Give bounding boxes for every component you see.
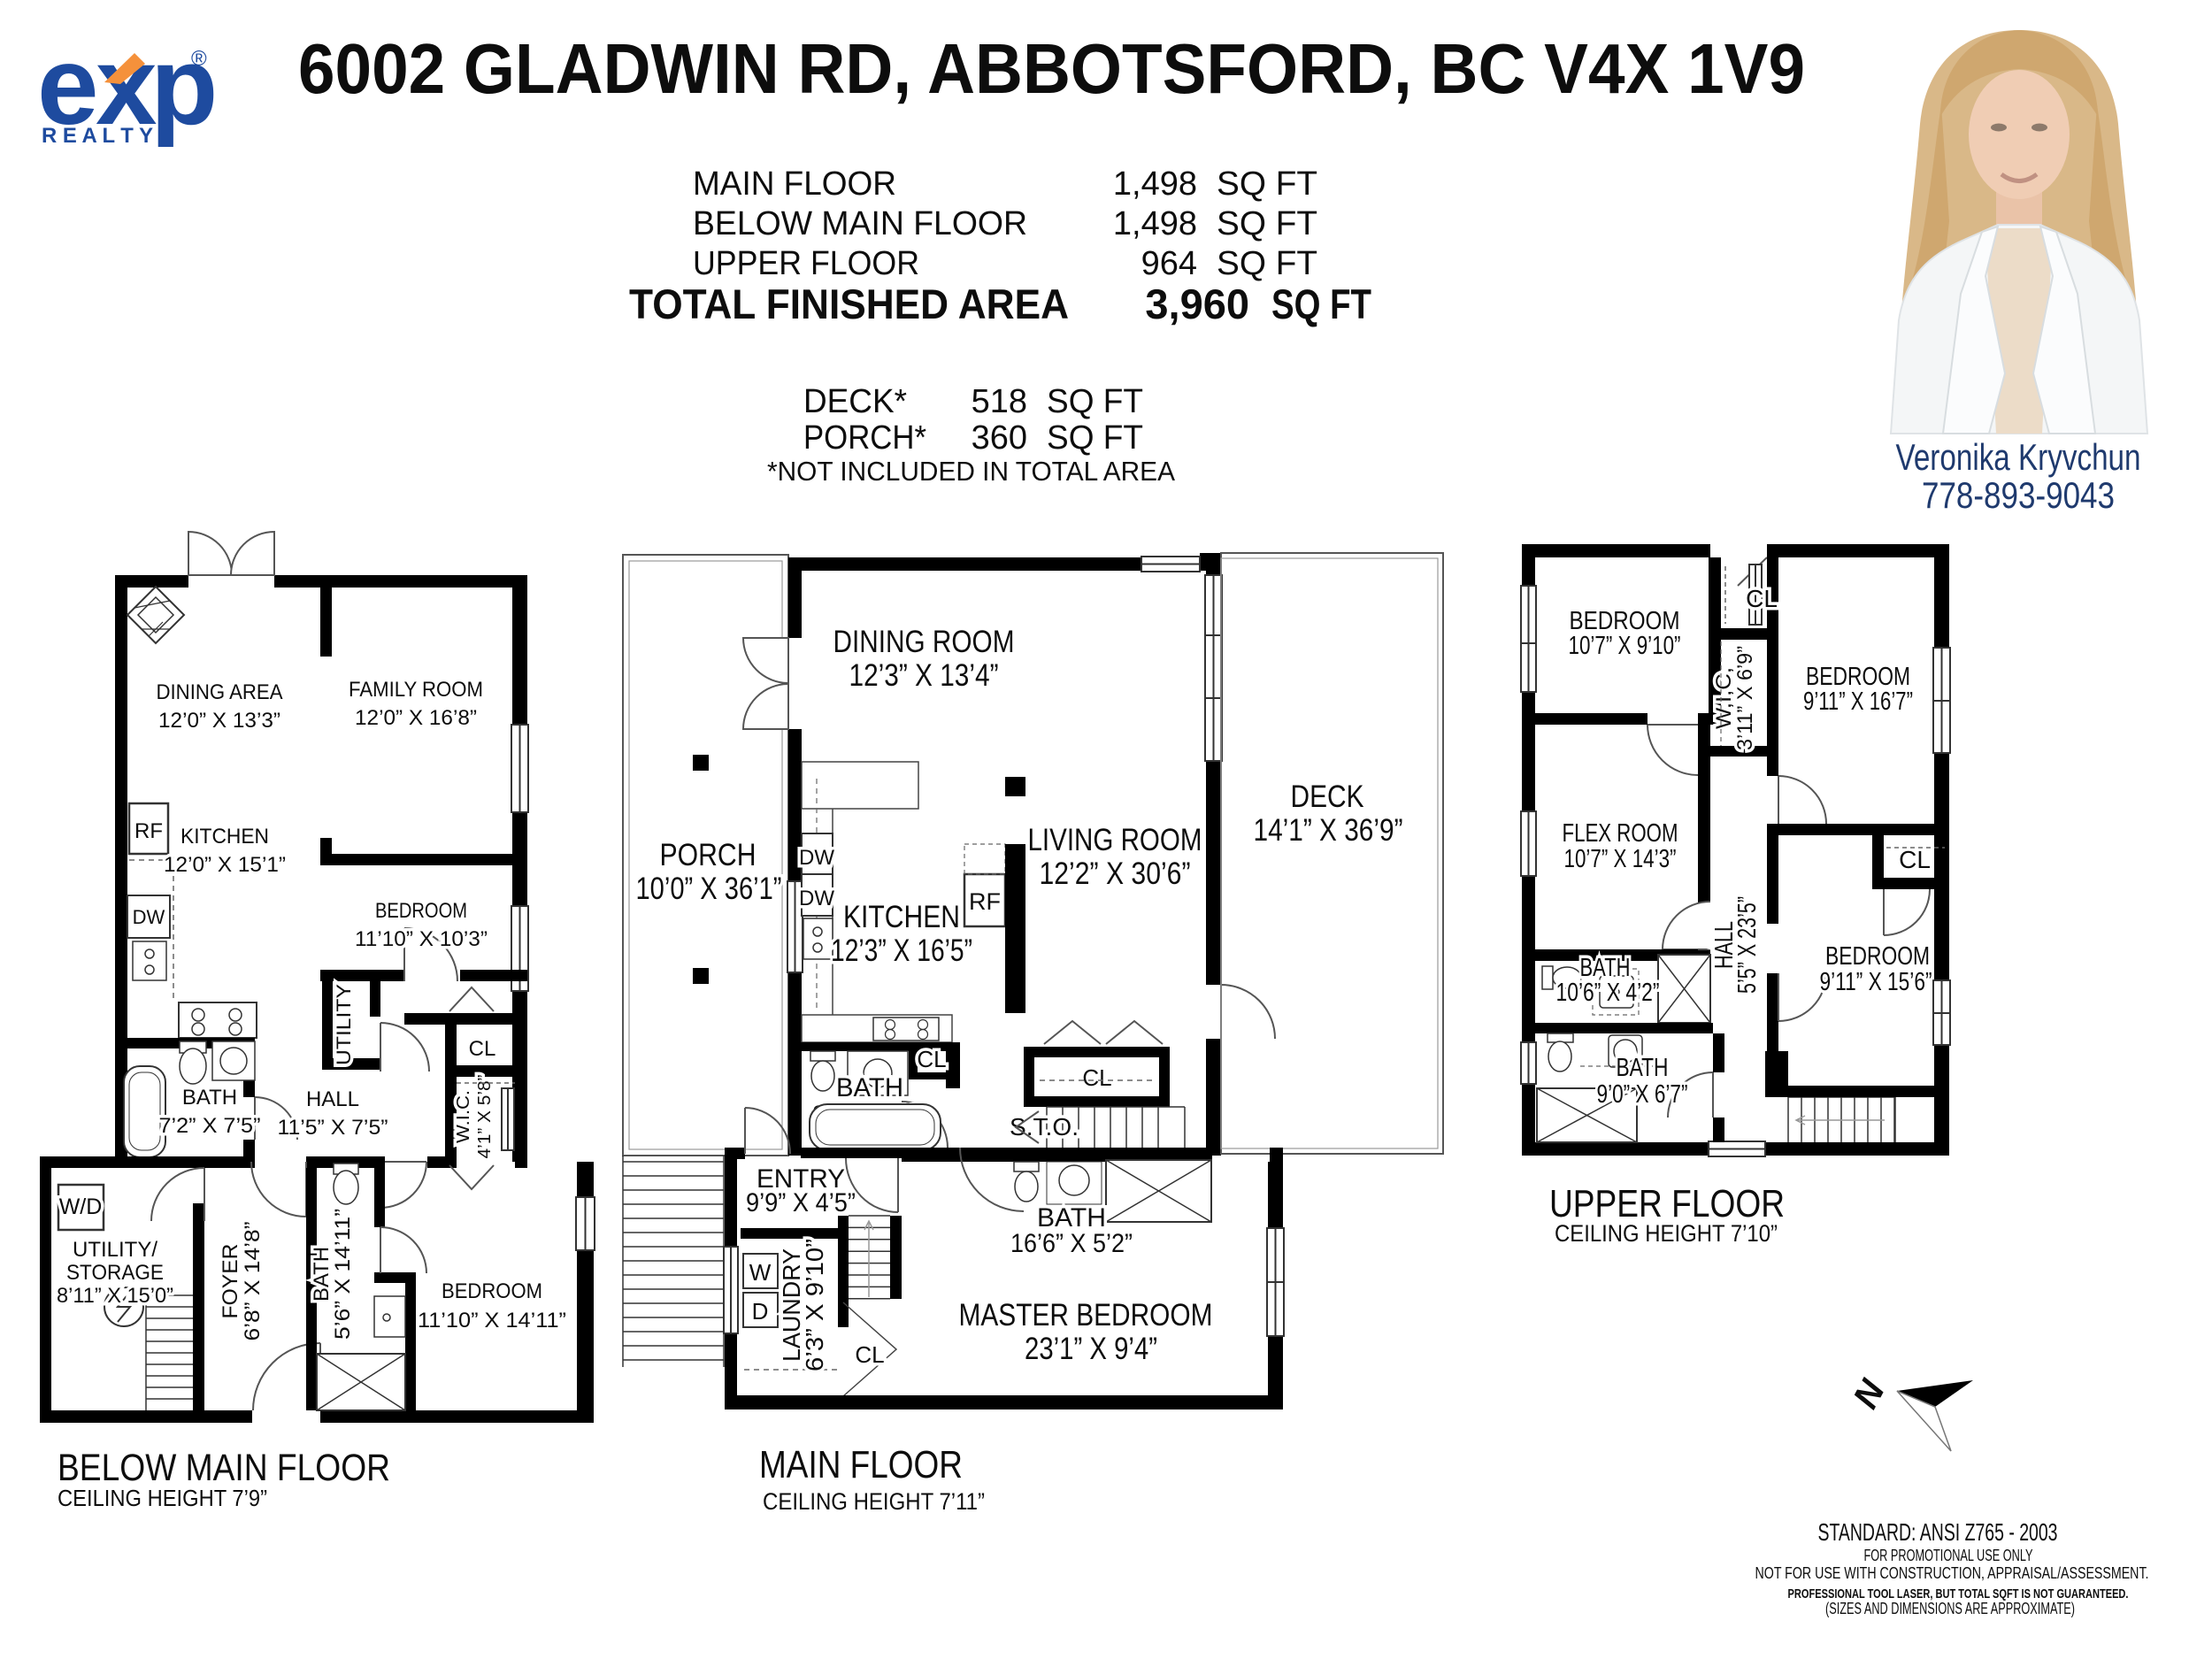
svg-text:6’3” X 9’10”: 6’3” X 9’10” [801, 1239, 828, 1371]
svg-text:BEDROOM: BEDROOM [1825, 942, 1930, 971]
svg-text:23’1” X 9’4”: 23’1” X 9’4” [1025, 1332, 1157, 1366]
svg-text:8’11” X 15’0”: 8’11” X 15’0” [57, 1284, 173, 1308]
svg-text:9’0” X 6’7”: 9’0” X 6’7” [1597, 1080, 1688, 1109]
svg-text:HALL: HALL [306, 1087, 359, 1111]
svg-text:BEDROOM: BEDROOM [442, 1279, 542, 1303]
svg-text:W/D: W/D [59, 1194, 103, 1219]
svg-text:DECK: DECK [1291, 780, 1364, 814]
svg-text:3’11” X 6’9”: 3’11” X 6’9” [1733, 646, 1757, 750]
svg-text:SQ FT: SQ FT [1271, 280, 1371, 327]
svg-text:D: D [752, 1298, 769, 1325]
svg-text:12’3” X 16’5”: 12’3” X 16’5” [831, 933, 972, 968]
svg-text:UTILITY/: UTILITY/ [73, 1238, 157, 1262]
svg-text:UTILITY: UTILITY [333, 984, 355, 1065]
svg-text:11’10” X 10’3”: 11’10” X 10’3” [355, 927, 488, 951]
svg-text:RF: RF [134, 819, 163, 843]
svg-text:CL: CL [855, 1341, 884, 1368]
svg-text:SQ FT: SQ FT [1047, 419, 1143, 457]
svg-text:SQ FT: SQ FT [1047, 383, 1143, 420]
svg-text:DW: DW [799, 846, 834, 870]
svg-text:11’5” X 7’5”: 11’5” X 7’5” [278, 1116, 388, 1140]
svg-text:12’0” X 13’3”: 12’0” X 13’3” [158, 709, 280, 733]
svg-text:BEDROOM: BEDROOM [375, 899, 467, 923]
svg-text:DECK*: DECK* [803, 383, 907, 420]
svg-text:12’2” X 30’6”: 12’2” X 30’6” [1040, 856, 1191, 891]
svg-text:W,I,C,: W,I,C, [1712, 667, 1736, 729]
svg-text:SQ FT: SQ FT [1217, 205, 1317, 242]
svg-text:FOYER: FOYER [219, 1244, 242, 1319]
svg-text:PORCH*: PORCH* [803, 419, 926, 457]
svg-text:BATH: BATH [1617, 1054, 1669, 1082]
svg-text:W: W [749, 1259, 772, 1286]
svg-text:10’7” X 9’10”: 10’7” X 9’10” [1569, 632, 1681, 660]
svg-text:BELOW MAIN FLOOR: BELOW MAIN FLOOR [58, 1447, 390, 1489]
svg-text:CL: CL [1746, 585, 1778, 612]
svg-text:6’8” X 14’8”: 6’8” X 14’8” [241, 1221, 265, 1340]
svg-text:MAIN FLOOR: MAIN FLOOR [759, 1443, 963, 1486]
svg-text:CEILING HEIGHT 7’9”: CEILING HEIGHT 7’9” [58, 1485, 267, 1511]
svg-text:DINING AREA: DINING AREA [157, 680, 283, 704]
svg-text:9’9” X 4’5”: 9’9” X 4’5” [746, 1188, 856, 1217]
svg-text:12’3” X 13’4”: 12’3” X 13’4” [849, 658, 999, 693]
svg-text:CL: CL [1899, 846, 1931, 873]
svg-text:5’6” X 14’11”: 5’6” X 14’11” [331, 1209, 355, 1340]
svg-text:FAMILY ROOM: FAMILY ROOM [349, 678, 483, 702]
svg-text:PORCH: PORCH [660, 838, 757, 872]
svg-text:11’10” X 14’11”: 11’10” X 14’11” [418, 1309, 566, 1333]
svg-text:14’1” X 36’9”: 14’1” X 36’9” [1254, 813, 1403, 848]
svg-text:BATH: BATH [836, 1073, 903, 1102]
svg-text:4’1” X 5’8”: 4’1” X 5’8” [475, 1075, 495, 1159]
svg-text:S.T.O.: S.T.O. [1010, 1113, 1079, 1141]
svg-text:10’6” X 4’2”: 10’6” X 4’2” [1556, 979, 1660, 1007]
svg-text:3,960: 3,960 [1145, 280, 1249, 327]
svg-text:KITCHEN: KITCHEN [843, 900, 960, 934]
svg-text:®: ® [191, 47, 207, 71]
svg-text:CL: CL [917, 1046, 946, 1072]
svg-text:10’7” X 14’3”: 10’7” X 14’3” [1564, 845, 1677, 873]
svg-text:7’2” X 7’5”: 7’2” X 7’5” [159, 1114, 261, 1138]
svg-text:964: 964 [1141, 245, 1197, 282]
svg-text:MASTER BEDROOM: MASTER BEDROOM [959, 1298, 1213, 1333]
svg-text:p: p [150, 25, 218, 148]
svg-text:STANDARD: ANSI Z765 - 2003: STANDARD: ANSI Z765 - 2003 [1818, 1518, 2058, 1546]
svg-text:FOR PROMOTIONAL USE ONLY: FOR PROMOTIONAL USE ONLY [1864, 1547, 2033, 1564]
svg-text:LIVING ROOM: LIVING ROOM [1028, 823, 1202, 857]
svg-text:5’5” X 23’5”: 5’5” X 23’5” [1733, 896, 1762, 994]
svg-text:TOTAL FINISHED AREA: TOTAL FINISHED AREA [629, 280, 1069, 327]
svg-text:DW: DW [799, 887, 834, 910]
svg-text:12’0” X 15’1”: 12’0” X 15’1” [164, 853, 286, 877]
svg-text:BATH: BATH [182, 1086, 237, 1110]
svg-text:(SIZES AND DIMENSIONS ARE APPR: (SIZES AND DIMENSIONS ARE APPROXIMATE) [1825, 1600, 2075, 1617]
svg-text:10’0” X 36’1”: 10’0” X 36’1” [636, 872, 782, 906]
svg-text:1,498: 1,498 [1113, 165, 1197, 203]
svg-text:UPPER FLOOR: UPPER FLOOR [693, 245, 919, 282]
svg-text:BELOW MAIN FLOOR: BELOW MAIN FLOOR [693, 205, 1027, 242]
svg-text:W.I.C.: W.I.C. [454, 1090, 473, 1143]
svg-text:R E A L T Y: R E A L T Y [42, 124, 153, 148]
svg-text:1,498: 1,498 [1113, 205, 1197, 242]
svg-text:RF: RF [969, 888, 1001, 915]
svg-text:MAIN FLOOR: MAIN FLOOR [693, 165, 896, 203]
svg-text:778-893-9043: 778-893-9043 [1922, 474, 2115, 516]
svg-text:16’6” X 5’2”: 16’6” X 5’2” [1010, 1229, 1133, 1258]
svg-text:Veronika Kryvchun: Veronika Kryvchun [1896, 436, 2141, 478]
svg-text:12’0” X 16’8”: 12’0” X 16’8” [355, 706, 477, 730]
svg-text:NOT FOR USE WITH CONSTRUCTION,: NOT FOR USE WITH CONSTRUCTION, APPRAISAL… [1755, 1564, 2149, 1582]
svg-text:360: 360 [972, 419, 1027, 457]
svg-text:UPPER FLOOR: UPPER FLOOR [1549, 1182, 1785, 1225]
svg-text:KITCHEN: KITCHEN [180, 825, 269, 849]
svg-text:518: 518 [972, 383, 1027, 420]
svg-text:FLEX ROOM: FLEX ROOM [1563, 819, 1678, 848]
svg-text:6002 GLADWIN RD, ABBOTSFORD, B: 6002 GLADWIN RD, ABBOTSFORD, BC V4X 1V9 [298, 29, 1805, 108]
svg-text:CL: CL [1082, 1064, 1111, 1091]
svg-text:STORAGE: STORAGE [66, 1261, 164, 1285]
svg-text:9’11” X 16’7”: 9’11” X 16’7” [1803, 687, 1913, 716]
svg-text:CEILING HEIGHT 7’10”: CEILING HEIGHT 7’10” [1555, 1220, 1778, 1247]
svg-text:CEILING HEIGHT 7’11”: CEILING HEIGHT 7’11” [763, 1488, 985, 1515]
svg-text:SQ FT: SQ FT [1217, 165, 1317, 203]
svg-text:SQ FT: SQ FT [1217, 245, 1317, 282]
svg-text:CL: CL [469, 1037, 496, 1061]
svg-text:DW: DW [133, 906, 165, 928]
svg-text:9’11” X 15’6”: 9’11” X 15’6” [1820, 968, 1932, 996]
svg-text:DINING ROOM: DINING ROOM [833, 625, 1015, 659]
svg-text:*NOT INCLUDED IN TOTAL AREA: *NOT INCLUDED IN TOTAL AREA [767, 456, 1175, 487]
svg-text:BATH: BATH [310, 1247, 334, 1302]
